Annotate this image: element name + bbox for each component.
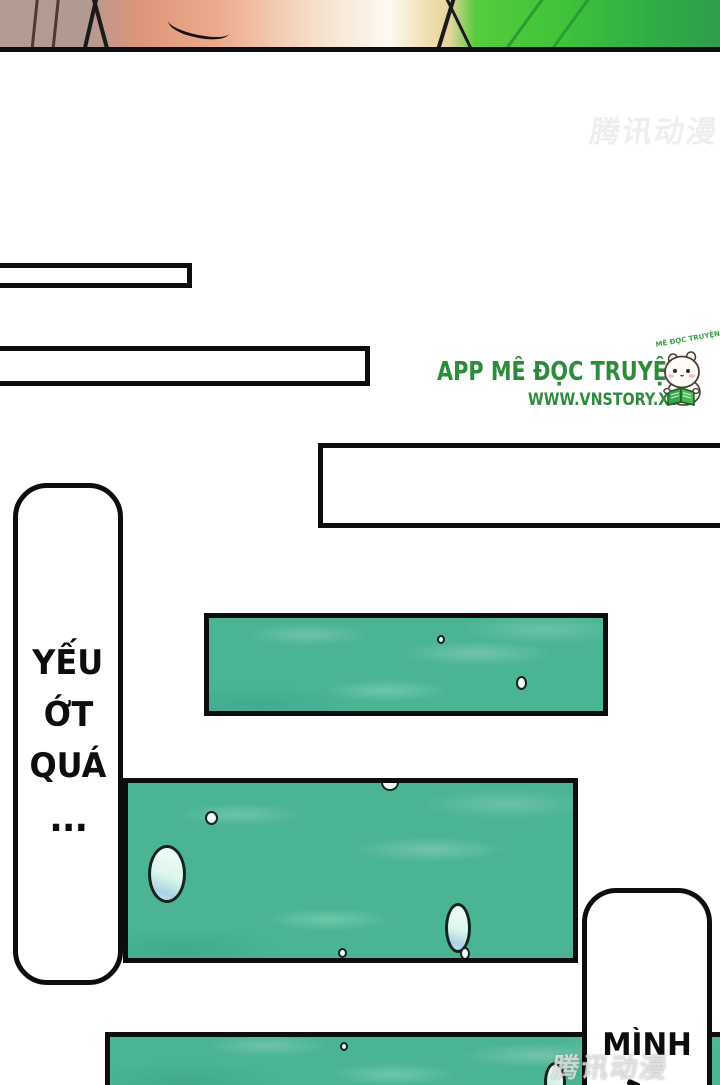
- branch-line: [90, 0, 111, 52]
- leaf-vein-line: [497, 0, 546, 52]
- water-droplet-large: [148, 845, 186, 903]
- bubble-text-line: YẾU: [33, 638, 104, 690]
- tencent-watermark-bottom: 腾讯动漫: [550, 1052, 720, 1085]
- water-droplet: [437, 635, 445, 644]
- water-panel-2: [123, 778, 578, 963]
- water-droplet: [381, 778, 399, 791]
- bubble-text-line: QUÁ: [30, 741, 107, 793]
- speech-bubble-left: YẾU ỚT QUÁ ...: [13, 483, 123, 985]
- leaf-edge-line: [444, 0, 477, 52]
- panel-bar-2: [0, 346, 370, 386]
- water-droplet: [338, 948, 347, 958]
- mascot-caption: MÊ ĐỌC TRUYỆN: [655, 329, 720, 349]
- water-droplet: [340, 1042, 348, 1051]
- leaf-edge-line: [433, 0, 457, 52]
- mascot-icon: [658, 350, 710, 408]
- bubble-text-line: ỚT: [43, 690, 93, 742]
- water-droplet: [445, 903, 471, 953]
- leaf-vein-line: [543, 0, 592, 52]
- bubble-ellipsis: ...: [49, 807, 87, 830]
- panel-bar-1: [0, 263, 192, 288]
- water-droplet: [205, 811, 218, 825]
- tencent-watermark-top: 腾讯动漫: [586, 108, 720, 158]
- top-artwork-strip: [0, 0, 720, 52]
- shoulder-outline: [166, 9, 231, 45]
- app-logo-title: APP MÊ ĐỌC TRUYỆN: [437, 357, 684, 387]
- panel-bar-3: [318, 443, 720, 528]
- water-droplet: [516, 676, 527, 690]
- branch-line: [30, 0, 40, 52]
- branch-line: [51, 0, 61, 52]
- water-droplet: [460, 947, 470, 960]
- water-panel-1: [204, 613, 608, 716]
- comic-page: 腾讯动漫 APP MÊ ĐỌC TRUYỆN WWW.VNSTORY.XYZ M…: [0, 0, 720, 1085]
